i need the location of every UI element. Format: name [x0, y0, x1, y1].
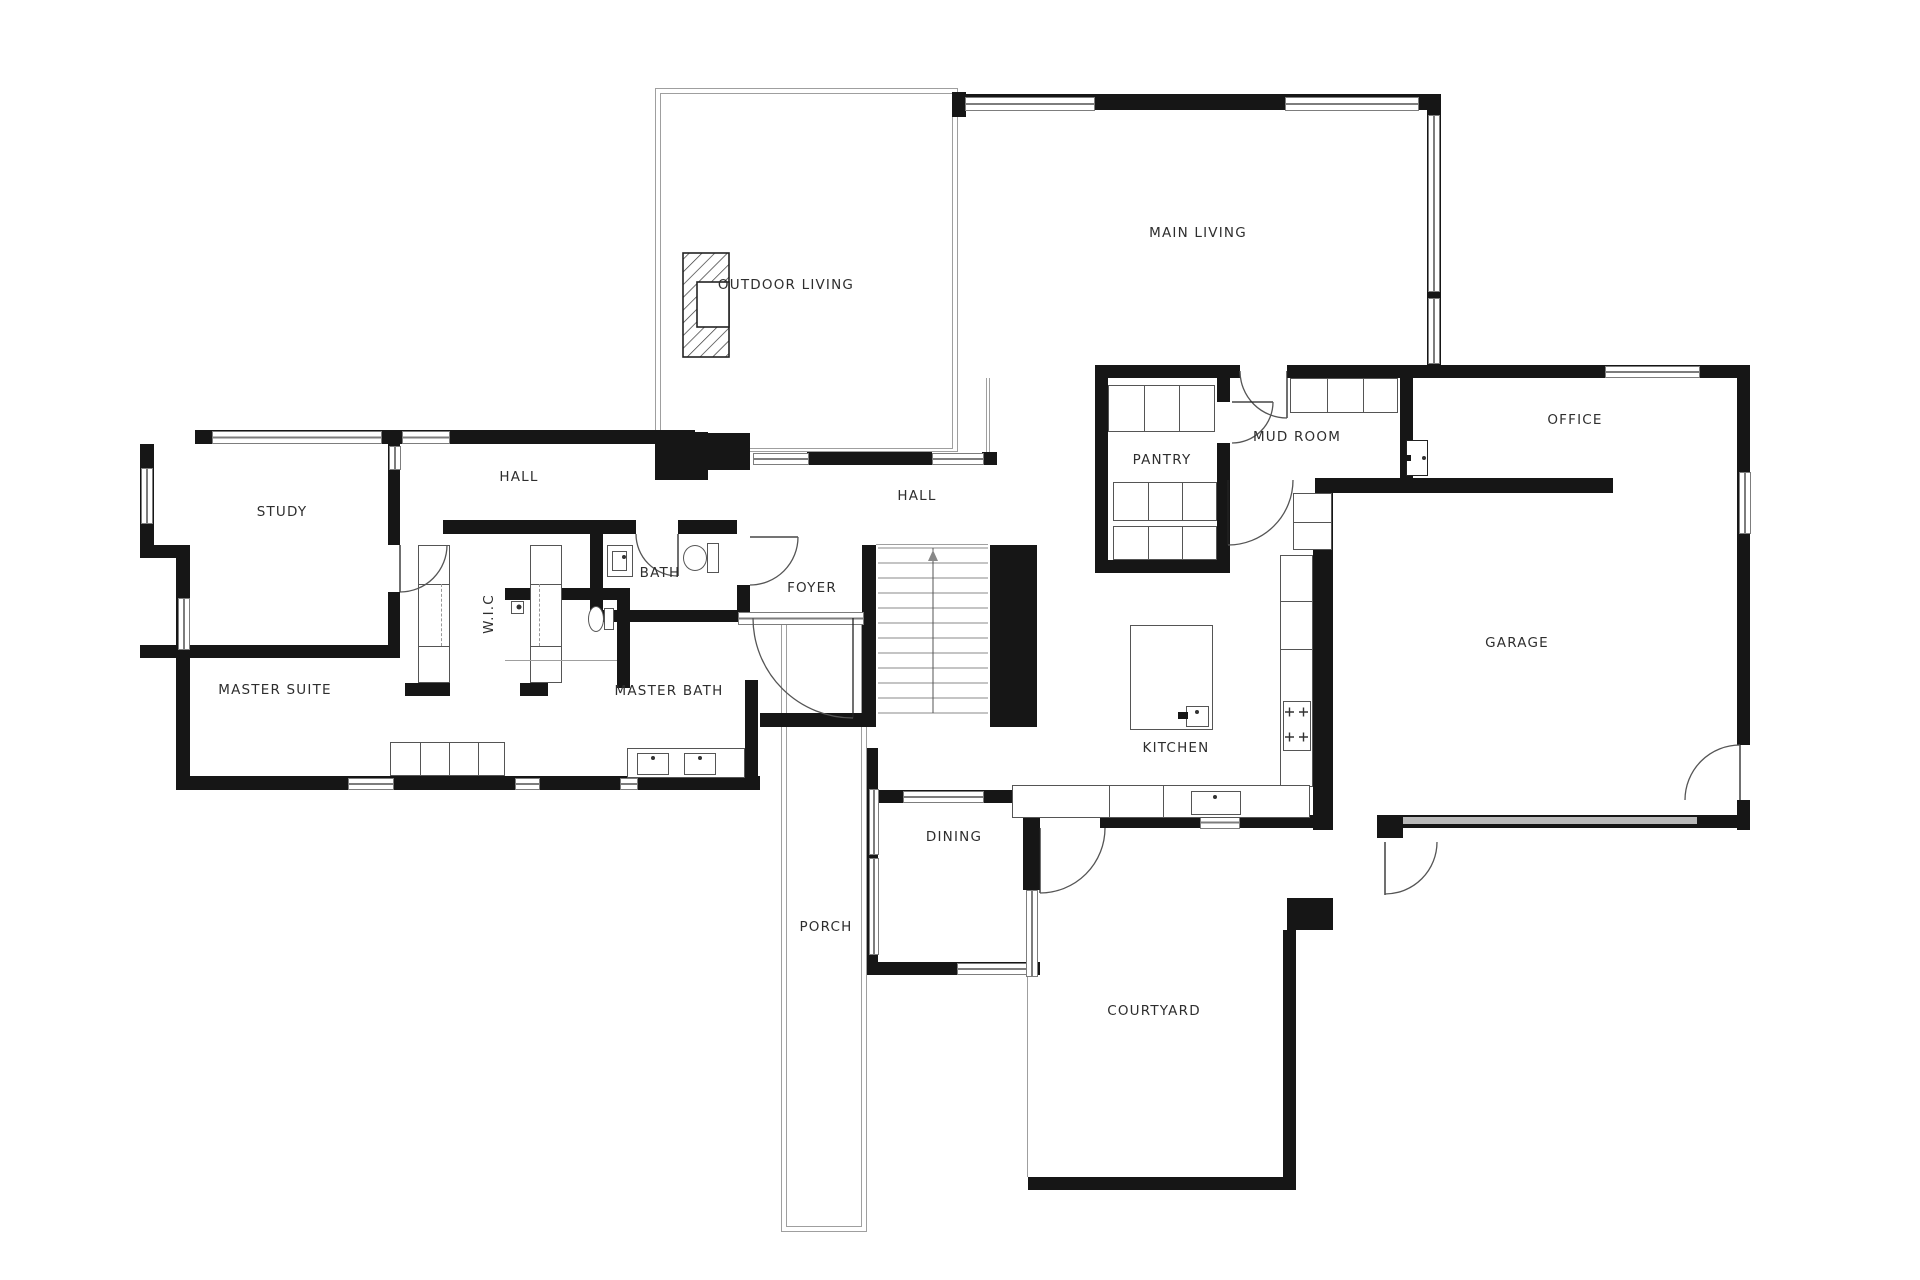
wic-closet-right-shelf — [531, 584, 561, 585]
door-mainliving-mudroom — [1240, 371, 1287, 418]
kitchen-cooktop — [1283, 701, 1311, 751]
wall-masterbath-right — [745, 680, 758, 778]
wall-mainliving-bottom-left — [1095, 365, 1240, 378]
window-dining-bottom — [957, 963, 1035, 975]
wall-masterwing-bottom — [176, 776, 760, 790]
window-hallband-1 — [753, 453, 809, 465]
room-label-hall-east: HALL — [897, 488, 936, 504]
window-office-right — [1739, 472, 1751, 534]
room-label-pantry: PANTRY — [1133, 452, 1192, 468]
window-mainliving-top-2 — [1285, 97, 1419, 111]
wall-pantry-bottom — [1095, 560, 1230, 573]
wall-left-jog — [140, 545, 190, 558]
wic-closet-left — [418, 545, 450, 683]
window-leftwing-2 — [402, 431, 450, 444]
room-label-hall-west: HALL — [499, 469, 538, 485]
room-label-kitchen: KITCHEN — [1143, 740, 1210, 756]
staircase-icon — [878, 548, 988, 713]
stairs-top-line — [876, 544, 988, 546]
room-label-foyer: FOYER — [787, 580, 837, 596]
pantry-shelf-top-div2 — [1179, 386, 1180, 431]
bath-toilet-bowl — [683, 545, 707, 571]
masterbath-vanity-counter — [627, 748, 745, 778]
window-mainliving-right-1 — [1428, 115, 1440, 292]
room-label-wic: W.I.C — [481, 594, 497, 634]
door-dining-courtyard — [1040, 828, 1105, 893]
bath-toilet-tank — [707, 543, 719, 573]
pantry-shelf-mid — [1113, 482, 1217, 521]
wall-study-right-lower — [388, 592, 400, 645]
shower-room-toilet-bowl — [588, 606, 604, 632]
room-label-porch: PORCH — [799, 919, 852, 935]
pantry-shelf-top-div1 — [1144, 386, 1145, 431]
master-closet-div3 — [478, 743, 479, 775]
wall-shower-top — [505, 588, 630, 600]
room-label-garage: GARAGE — [1485, 635, 1549, 651]
window-foyer-front — [738, 612, 864, 625]
window-office-top — [1605, 366, 1700, 378]
bath-vanity-basin — [612, 551, 627, 571]
mudroom-cubby-div2 — [1363, 379, 1364, 412]
office-door-handle — [1401, 455, 1411, 461]
window-dining-top — [903, 791, 984, 803]
wall-pantry-right-lower — [1217, 443, 1230, 573]
wall-wic-bottom-right — [520, 683, 548, 696]
wall-garage-corner-post — [1377, 815, 1403, 838]
window-study-right-stub — [389, 446, 401, 470]
window-study-left — [141, 468, 153, 524]
wall-courtyard-bottom — [1028, 1177, 1296, 1190]
courtyard-walkway-line — [1027, 975, 1029, 1177]
wall-stairs-right-mass — [990, 545, 1037, 727]
room-label-main-living: MAIN LIVING — [1149, 225, 1247, 241]
door-garage-side — [1685, 745, 1740, 800]
door-mudroom-kitchen — [1228, 480, 1293, 545]
wall-wic-bottom-left — [405, 683, 450, 696]
window-master-bottom — [348, 778, 394, 790]
wall-right-exterior — [1737, 365, 1750, 745]
wall-stairs-bottom — [760, 713, 876, 727]
mudroom-closet-shelf — [1294, 522, 1331, 523]
wic-closet-left-shelf — [419, 584, 449, 585]
master-closet-div2 — [449, 743, 450, 775]
wall-pantry-left — [1095, 378, 1108, 573]
kitchen-right-counter-div2 — [1281, 649, 1312, 650]
pantry-shelf-bottom-div1 — [1148, 527, 1149, 559]
wall-bath-left — [590, 534, 603, 610]
room-label-study: STUDY — [257, 504, 308, 520]
master-closet-div1 — [420, 743, 421, 775]
wall-stairs-left — [862, 545, 876, 727]
door-foyer-west — [750, 537, 798, 585]
window-courtyard-left — [1026, 890, 1038, 977]
room-label-dining: DINING — [926, 829, 982, 845]
pantry-shelf-mid-div1 — [1148, 483, 1149, 520]
floor-plan: OUTDOOR LIVING MAIN LIVING HALL STUDY MA… — [0, 0, 1920, 1280]
door-garage-walkway — [1385, 842, 1437, 895]
window-dining-left-2 — [869, 858, 879, 955]
wall-master-left — [176, 558, 190, 778]
kitchen-bottom-sink — [1191, 791, 1241, 815]
wall-patio-corner-block — [655, 432, 708, 480]
wall-hall-band-post — [982, 452, 997, 465]
room-label-master-bath: MASTER BATH — [615, 683, 724, 699]
window-master-left — [178, 598, 190, 650]
garage-door-band — [1403, 817, 1697, 824]
pantry-shelf-top — [1108, 385, 1215, 432]
wic-closet-right-rod — [539, 584, 540, 646]
wall-pantry-right-upper — [1217, 378, 1230, 402]
shower-pan-line — [505, 660, 617, 662]
master-closet-row — [390, 742, 505, 776]
wic-closet-right — [530, 545, 562, 683]
kitchen-right-counter — [1280, 555, 1313, 787]
plan-symbol-overlay — [0, 0, 1920, 1280]
wall-courtyard-right — [1283, 930, 1296, 1177]
mudroom-cubbies — [1290, 378, 1398, 413]
wall-office-garage-divider — [1315, 478, 1613, 493]
patio-mainliving-divider-line — [986, 378, 990, 452]
kitchen-right-counter-div1 — [1281, 601, 1312, 602]
room-label-office: OFFICE — [1547, 412, 1602, 428]
room-label-master-suite: MASTER SUITE — [218, 682, 332, 698]
pantry-shelf-bottom — [1113, 526, 1217, 560]
kitchen-island-faucet — [1178, 712, 1188, 719]
window-hallband-2 — [932, 453, 984, 465]
wall-wicbath-top-right — [678, 520, 737, 534]
wic-closet-right-shelf2 — [531, 646, 561, 647]
window-masterbath-bottom-2 — [620, 778, 638, 790]
wall-courtyard-corner-block — [1287, 898, 1333, 930]
shower-room-toilet-tank — [604, 608, 614, 630]
bath-vanity — [607, 545, 633, 577]
pantry-shelf-mid-div2 — [1182, 483, 1183, 520]
window-dining-left-1 — [869, 789, 879, 855]
window-mainliving-right-2 — [1428, 298, 1440, 364]
office-door-icon — [1406, 440, 1428, 476]
room-label-mud-room: MUD ROOM — [1253, 429, 1341, 445]
window-masterbath-bottom-1 — [515, 778, 540, 790]
masterbath-sink-left — [637, 753, 669, 775]
window-leftwing-1 — [212, 431, 382, 444]
pantry-shelf-bottom-div2 — [1182, 527, 1183, 559]
masterbath-sink-right — [684, 753, 716, 775]
kitchen-island — [1130, 625, 1213, 730]
outdoor-living-patio-outline-inner — [660, 93, 953, 449]
stairs-up-arrow — [928, 550, 938, 561]
room-label-courtyard: COURTYARD — [1107, 1003, 1201, 1019]
window-mainliving-top-1 — [965, 97, 1095, 111]
shower-head-box — [511, 601, 524, 614]
kitchen-bottom-counter-div2 — [1163, 786, 1164, 817]
wall-mainliving-bottom-right — [1287, 365, 1440, 378]
wall-hall-band-mid — [807, 452, 932, 465]
kitchen-bottom-counter-div1 — [1109, 786, 1110, 817]
wall-mainliving-corner — [952, 92, 966, 117]
room-label-bath: BATH — [640, 565, 681, 581]
room-label-outdoor-living: OUTDOOR LIVING — [718, 277, 854, 293]
mudroom-cubby-div1 — [1327, 379, 1328, 412]
kitchen-island-sink — [1186, 706, 1209, 727]
wic-closet-left-rod — [441, 584, 442, 646]
wic-closet-left-shelf2 — [419, 646, 449, 647]
mudroom-closet — [1293, 493, 1332, 550]
kitchen-bottom-counter — [1012, 785, 1310, 818]
wall-wicbath-top-left — [443, 520, 636, 534]
